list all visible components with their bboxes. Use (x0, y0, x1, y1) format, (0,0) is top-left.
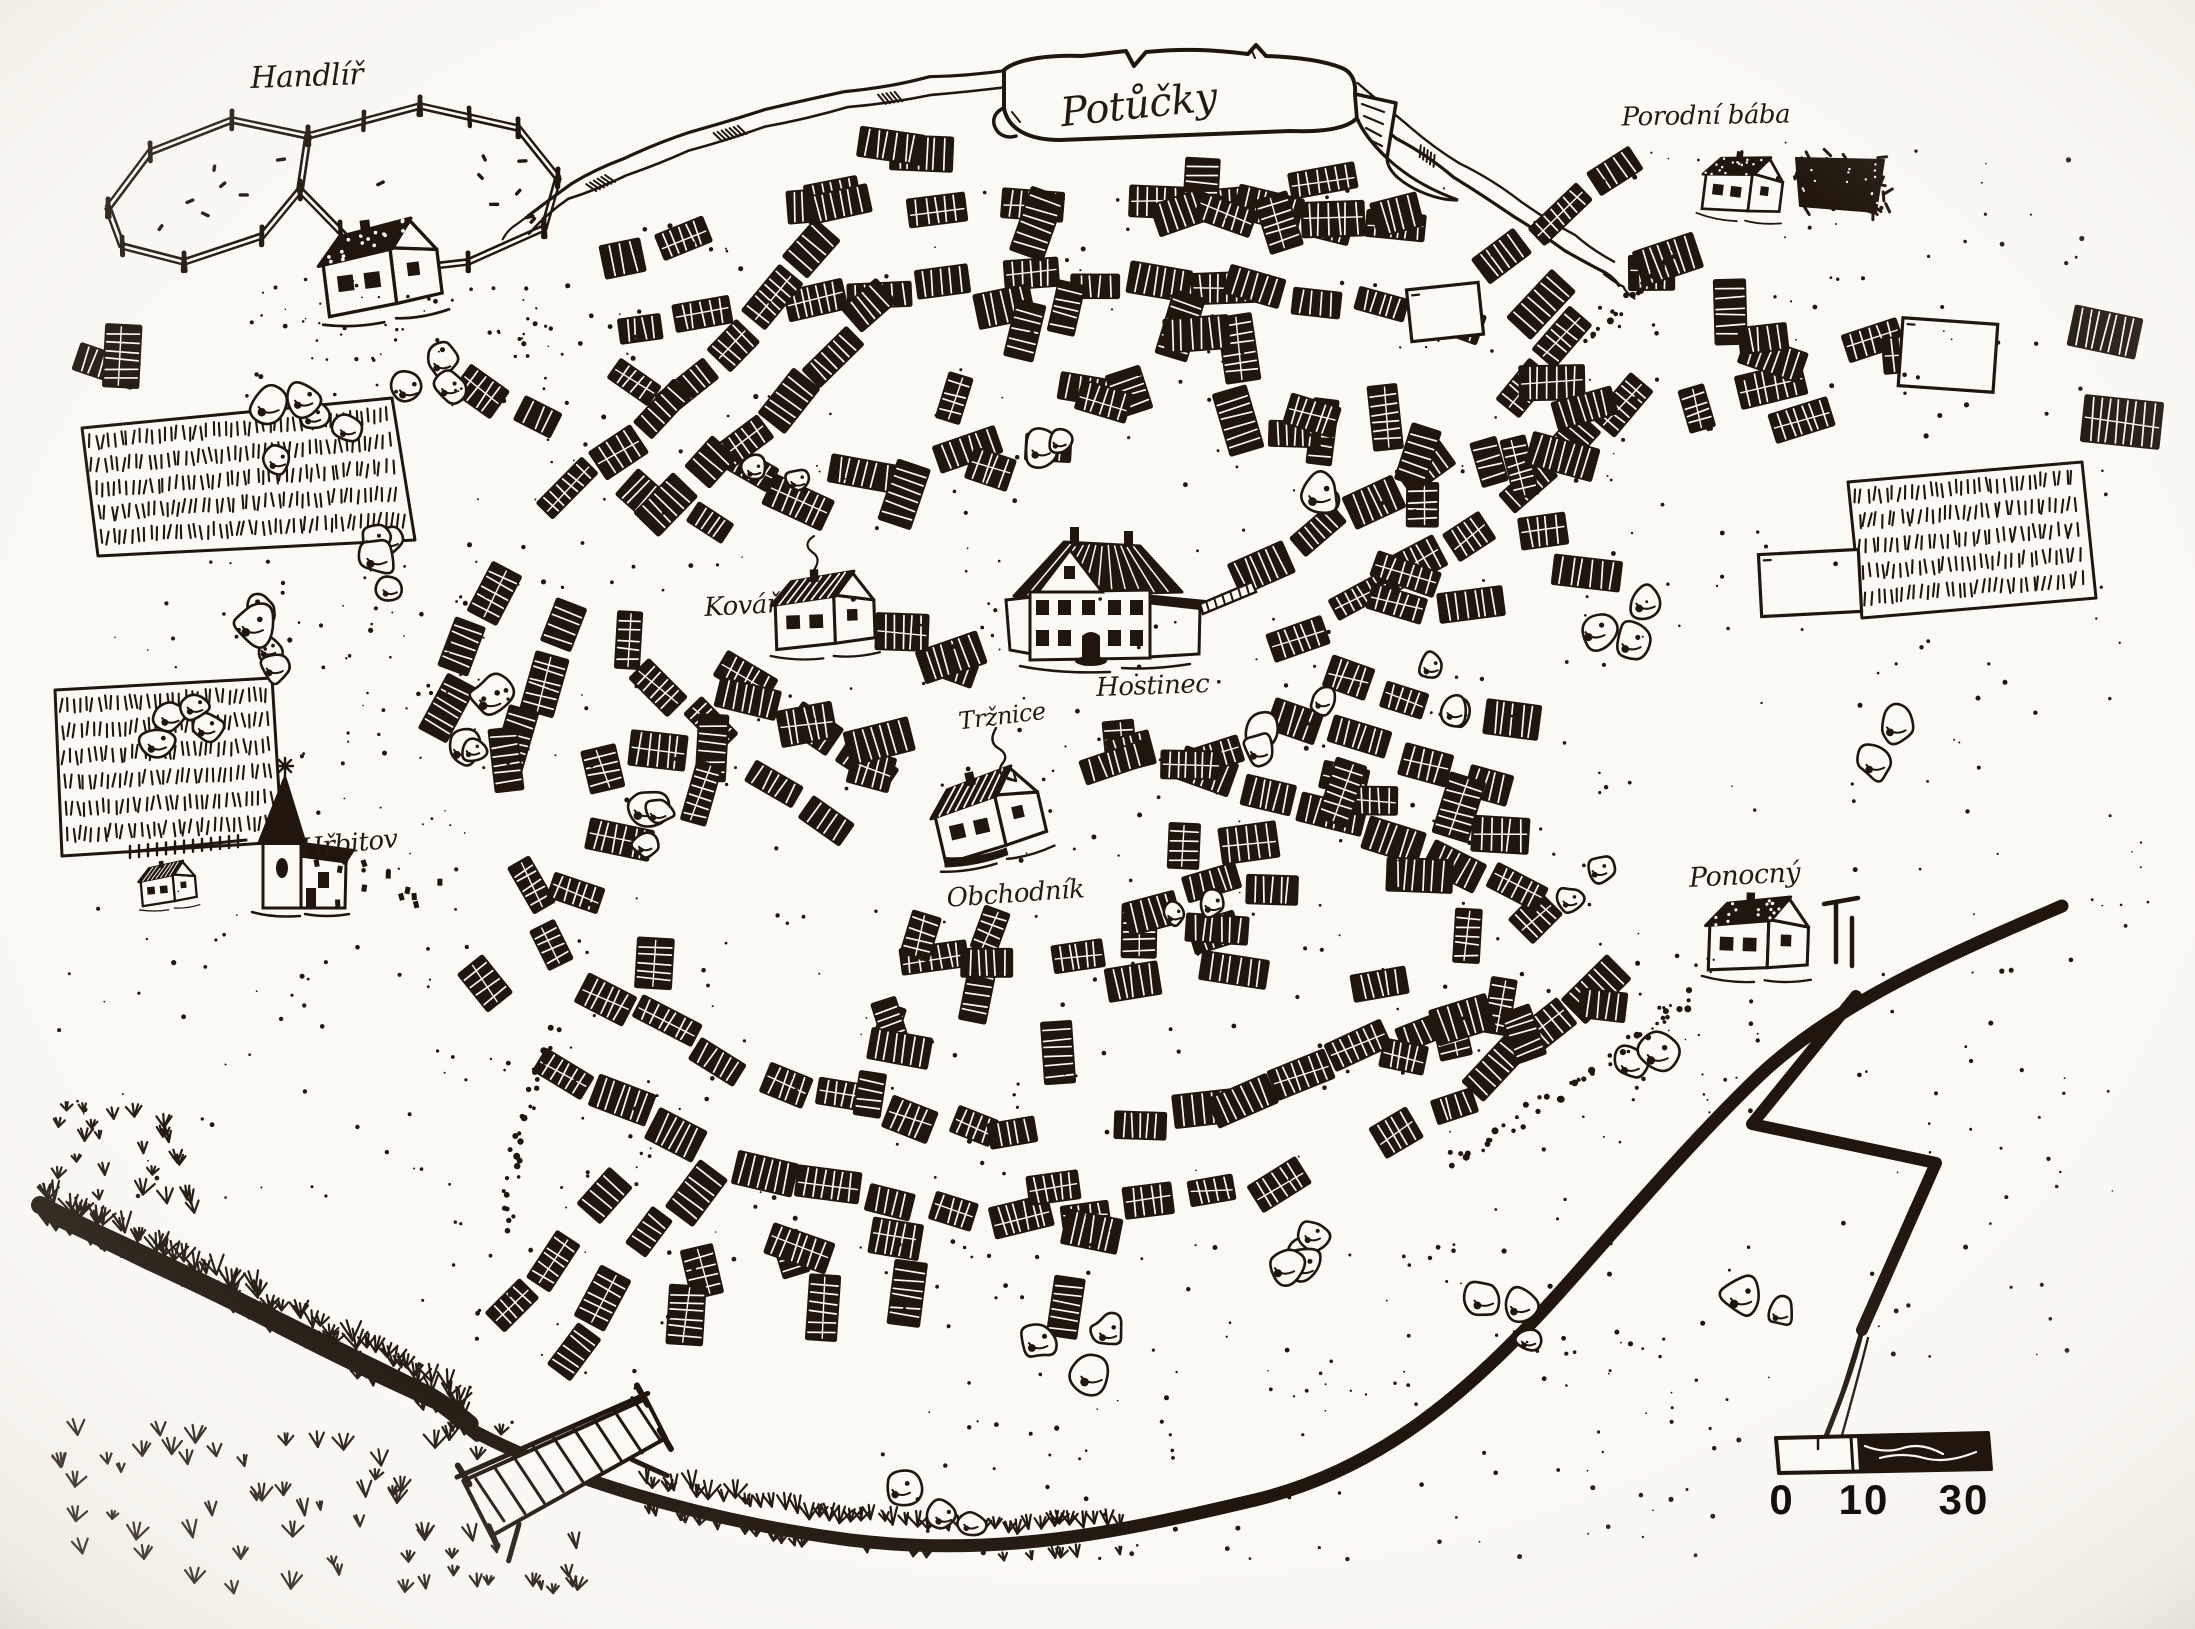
building (488, 727, 523, 792)
building (1483, 699, 1541, 740)
building (915, 264, 970, 299)
building (1367, 384, 1402, 451)
building (1302, 201, 1365, 238)
scale-tick-10: 10 (1839, 1476, 1890, 1523)
tree (1464, 1282, 1499, 1315)
map-canvas: Handlíř Potůčky Porodní bába Kovář Hosti… (0, 0, 2195, 1629)
building (2081, 395, 2163, 449)
building (1122, 1182, 1174, 1218)
building (907, 193, 968, 228)
building (1407, 483, 1438, 527)
building (1185, 913, 1248, 944)
building (1578, 988, 1627, 1022)
building (618, 314, 663, 344)
building (854, 1071, 887, 1118)
building (1168, 823, 1200, 869)
building-outline (1406, 282, 1483, 341)
building (868, 1217, 923, 1260)
building (628, 730, 687, 770)
crop-field (1848, 462, 2096, 618)
building (1246, 875, 1298, 905)
building (1161, 751, 1221, 780)
tree (391, 371, 421, 401)
building (1738, 323, 1788, 354)
building (599, 238, 645, 279)
building (1471, 816, 1529, 854)
tree (263, 445, 289, 474)
building (1453, 909, 1482, 964)
building (1292, 288, 1342, 319)
scale-bar-filled-segment (1857, 1433, 1991, 1471)
building-outline (1758, 549, 1861, 616)
tree (741, 455, 765, 479)
building (806, 1274, 840, 1341)
building (103, 324, 142, 388)
building-outline (1898, 318, 1998, 392)
scale-tick-0: 0 (1769, 1476, 1794, 1523)
building (1114, 1111, 1166, 1139)
tree (1050, 429, 1073, 453)
village-map: Handlíř Potůčky Porodní bába Kovář Hosti… (0, 0, 2195, 1629)
building (666, 1285, 705, 1346)
building (1163, 315, 1229, 353)
building (1105, 961, 1162, 1002)
building (875, 613, 928, 651)
building (1218, 821, 1279, 864)
scale-tick-30: 30 (1939, 1476, 1990, 1523)
label-porodni-baba: Porodní bába (1620, 100, 1790, 133)
building (1518, 513, 1568, 550)
building (961, 949, 1012, 977)
building (1386, 858, 1452, 893)
label-hostinec: Hostinec (1095, 669, 1211, 703)
building (887, 1260, 927, 1327)
building (1552, 555, 1622, 592)
building (615, 611, 642, 669)
building (1519, 365, 1584, 400)
scale-bar-divider (1851, 1437, 1853, 1470)
building (1041, 1021, 1075, 1084)
label-handlir: Handlíř (249, 57, 367, 96)
label-ponocny: Ponocný (1687, 857, 1802, 894)
tree (376, 577, 402, 601)
building (1026, 1170, 1080, 1205)
label-kovar: Kovář (703, 589, 783, 623)
building (635, 937, 674, 989)
